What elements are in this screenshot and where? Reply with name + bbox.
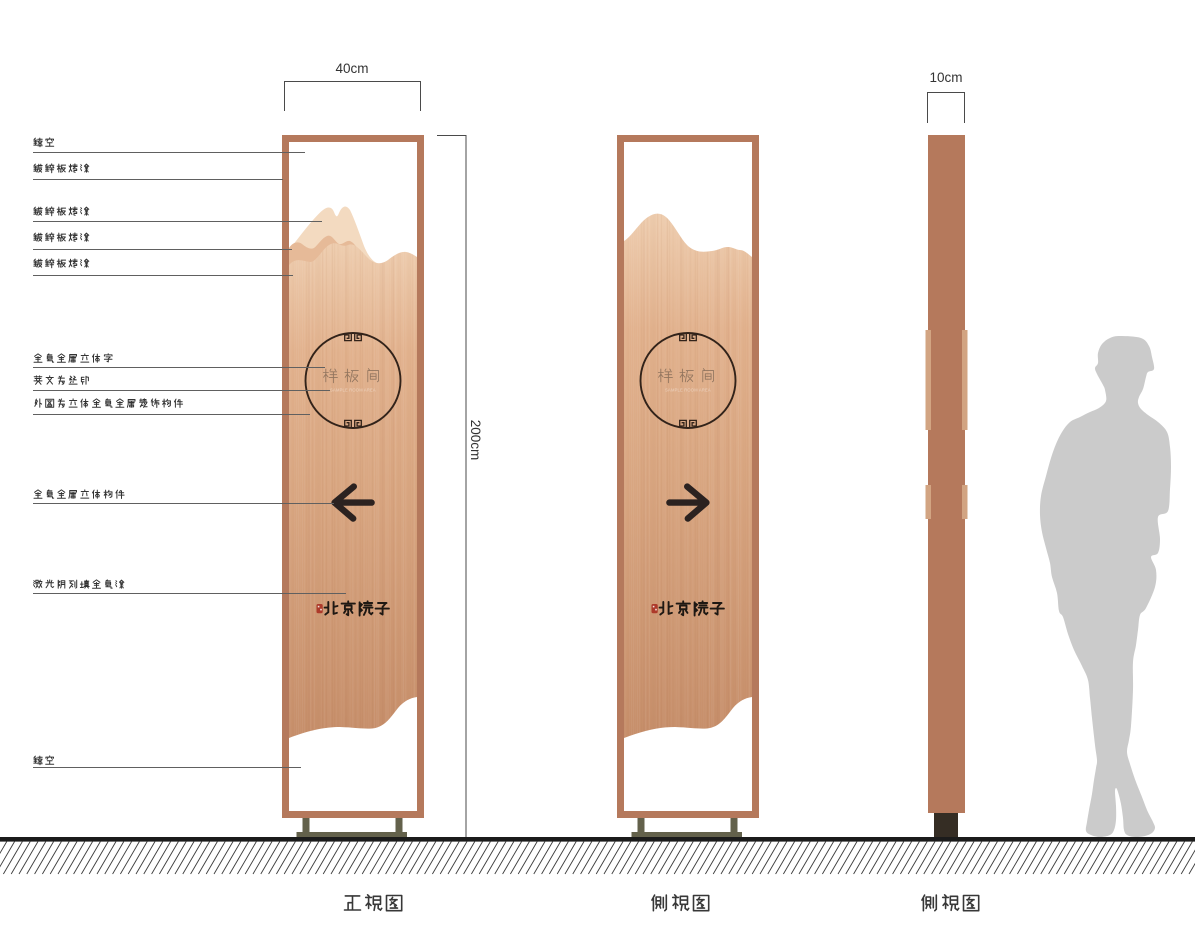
svg-text:40cm: 40cm: [335, 61, 368, 76]
svg-text:SAMPLE ROOM AREA: SAMPLE ROOM AREA: [330, 388, 376, 393]
svg-text:10cm: 10cm: [929, 70, 962, 85]
svg-text:200cm: 200cm: [468, 420, 483, 461]
svg-text:SAMPLE ROOM AREA: SAMPLE ROOM AREA: [665, 388, 711, 393]
